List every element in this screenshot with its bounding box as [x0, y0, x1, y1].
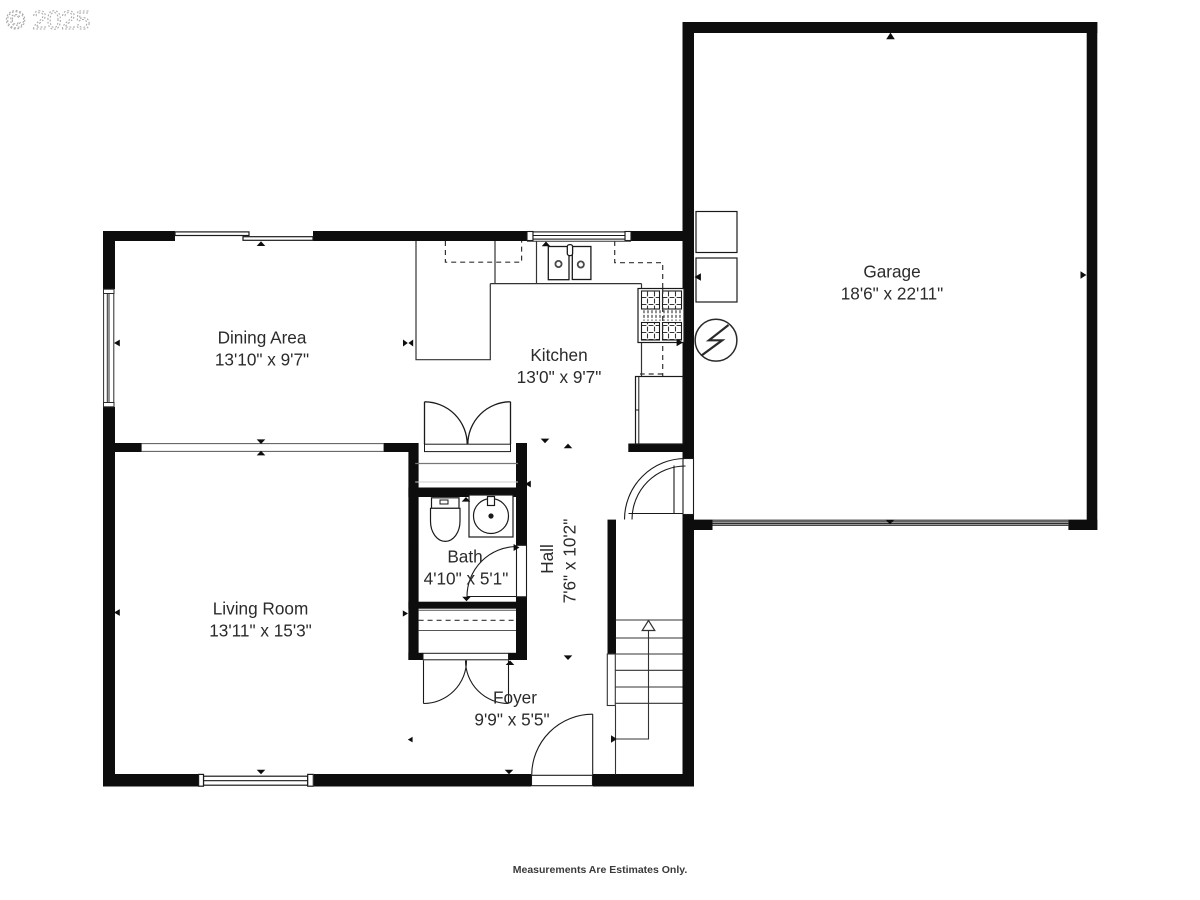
svg-text:Foyer: Foyer: [493, 688, 537, 708]
svg-text:13'11" x 15'3": 13'11" x 15'3": [209, 621, 312, 641]
svg-text:Measurements Are Estimates Onl: Measurements Are Estimates Only.: [513, 864, 688, 876]
svg-text:7'6" x 10'2": 7'6" x 10'2": [560, 519, 580, 604]
svg-text:© 2025: © 2025: [6, 5, 90, 35]
svg-text:13'10" x 9'7": 13'10" x 9'7": [215, 350, 309, 370]
svg-text:Kitchen: Kitchen: [530, 345, 587, 365]
svg-text:Hall: Hall: [537, 544, 557, 574]
svg-text:Dining Area: Dining Area: [218, 328, 307, 348]
svg-text:18'6" x 22'11": 18'6" x 22'11": [841, 284, 944, 304]
svg-text:4'10" x 5'1": 4'10" x 5'1": [424, 569, 509, 589]
svg-text:Living Room: Living Room: [213, 599, 309, 619]
svg-text:Garage: Garage: [863, 262, 920, 282]
svg-text:Bath: Bath: [447, 547, 482, 567]
svg-text:13'0" x 9'7": 13'0" x 9'7": [517, 367, 602, 387]
svg-text:9'9" x 5'5": 9'9" x 5'5": [474, 710, 549, 730]
